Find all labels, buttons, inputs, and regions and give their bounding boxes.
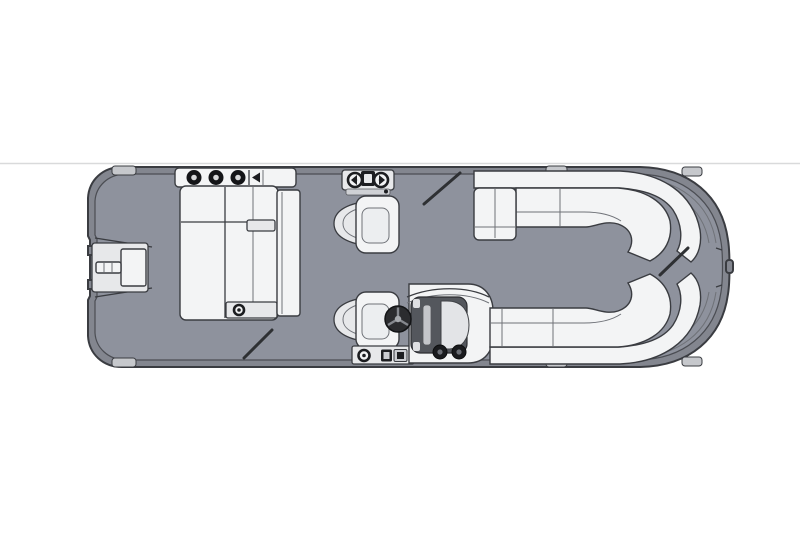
- latch-screw: [384, 190, 388, 194]
- console-throttle-track: [423, 305, 431, 345]
- lounger-body: [180, 186, 278, 320]
- helm: [334, 284, 493, 364]
- steering-wheel: [385, 306, 411, 332]
- speaker-cone: [235, 175, 241, 181]
- console-gauge-right-dial: [456, 349, 461, 354]
- latch-lower-strip: [346, 189, 390, 195]
- chair-cushion: [362, 208, 389, 243]
- step-switch-left-face: [384, 352, 390, 359]
- console-gauge-left-dial: [437, 349, 442, 354]
- stern-gate-panel: [121, 249, 146, 286]
- helm-step-base: [352, 346, 414, 364]
- boat-floorplan-canvas: Pontoon boat floor plan — top view diagr…: [0, 0, 800, 533]
- latch-block-window: [364, 174, 372, 183]
- lounger-side-panel: [277, 190, 300, 316]
- console-corner-pad-bottom: [413, 342, 420, 351]
- lounger-step: [247, 220, 275, 231]
- cleat-stern-starboard: [112, 358, 136, 367]
- bow-light: [726, 260, 733, 273]
- cleat-stern-port: [112, 166, 136, 175]
- swim-ladder: [96, 262, 121, 273]
- steering-wheel-hub: [395, 316, 401, 322]
- step-switch-right-face: [397, 352, 404, 359]
- step-cupholder-center: [362, 354, 366, 358]
- speaker-cone: [191, 175, 197, 181]
- cleat-bow-starboard: [682, 357, 702, 366]
- port-gate-latch: [342, 170, 394, 195]
- stern-platform: [88, 238, 152, 297]
- rear-lounger: [175, 168, 300, 320]
- helm-console: [407, 284, 493, 363]
- cupholder-center: [237, 308, 241, 312]
- floorplan-svg: [0, 0, 800, 533]
- console-corner-pad-top: [413, 299, 420, 308]
- cleat-bow-port: [682, 167, 702, 176]
- speaker-cone: [213, 175, 219, 181]
